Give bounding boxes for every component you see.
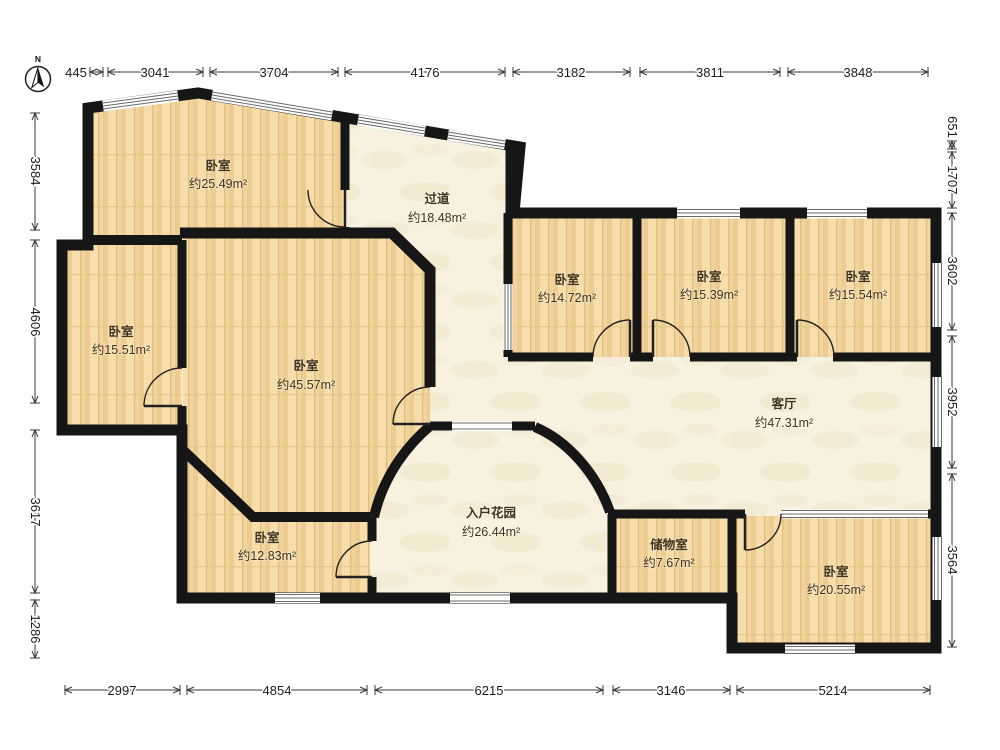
window-hall-partition: [505, 284, 511, 350]
room-name: 卧室: [696, 269, 722, 284]
window-bedroom-2055-bottom: [785, 647, 855, 654]
dim-right-3: 3952: [945, 388, 960, 417]
dim-top-6: 3848: [844, 65, 873, 80]
room-name: 储物室: [649, 537, 688, 552]
dim-left-3: 1286: [28, 615, 43, 644]
dim-top-2: 3704: [260, 65, 289, 80]
window-bedroom-1554-right: [935, 263, 942, 327]
room-name: 卧室: [823, 564, 849, 579]
room-area: 约20.55m²: [807, 582, 865, 597]
room-area: 约15.54m²: [829, 287, 887, 302]
dim-bottom-4: 5214: [819, 683, 848, 698]
dim-bottom-3: 3146: [657, 683, 686, 698]
room-area: 约18.48m²: [408, 210, 466, 225]
room-area: 约12.83m²: [238, 548, 296, 563]
dim-left-1: 4606: [28, 308, 43, 337]
room-name: 卧室: [293, 358, 319, 373]
room-name: 过道: [424, 191, 450, 206]
dim-top-1: 3041: [141, 65, 170, 80]
room-area: 约15.51m²: [92, 342, 150, 357]
dim-right-0: 651: [945, 116, 960, 138]
room-bedroom-2055-floor: [734, 516, 936, 648]
dim-top-0: 445: [65, 65, 87, 80]
dim-bottom-2: 6215: [475, 683, 504, 698]
room-area: 约25.49m²: [189, 176, 247, 191]
dim-top-3: 4176: [411, 65, 440, 80]
room-area: 约45.57m²: [277, 377, 335, 392]
room-bedroom-1539-floor: [639, 215, 788, 357]
room-area: 约14.72m²: [538, 290, 596, 305]
room-name: 卧室: [108, 324, 134, 339]
window-living-right: [935, 377, 942, 447]
room-name: 卧室: [254, 530, 280, 545]
window-bedroom-1539: [677, 210, 740, 217]
opening-garden-bottom: [450, 595, 510, 601]
window-bedroom-1554-top: [807, 210, 867, 217]
room-name: 客厅: [770, 396, 797, 411]
dim-right-4: 3564: [945, 546, 960, 575]
dim-right-1: 1707: [945, 166, 960, 195]
compass-north-label: N: [35, 54, 41, 64]
room-bedroom-1554-floor: [792, 215, 936, 357]
room-area: 约26.44m²: [462, 524, 520, 539]
dim-left-2: 3617: [28, 498, 43, 527]
floor-plan-page: 卧室 约25.49m² 过道 约18.48m² 卧室 约14.72m² 卧室 约…: [0, 0, 1000, 750]
floor-plan-drawing: 卧室 约25.49m² 过道 约18.48m² 卧室 约14.72m² 卧室 约…: [0, 0, 1000, 750]
room-name: 卧室: [554, 272, 580, 287]
dim-top-5: 3811: [696, 65, 724, 80]
dim-bottom-0: 2997: [108, 683, 137, 698]
opening-garden-top: [452, 423, 512, 429]
room-area: 约7.67m²: [643, 555, 694, 570]
compass: N: [26, 54, 51, 92]
dim-left-0: 3584: [28, 157, 43, 186]
room-area: 约15.39m²: [680, 287, 738, 302]
window-bedroom-2055-partition: [781, 511, 928, 518]
room-area: 约47.31m²: [755, 415, 813, 430]
room-name: 卧室: [845, 269, 871, 284]
dim-bottom-1: 4854: [263, 683, 292, 698]
window-bedroom-2055-right: [935, 537, 942, 600]
dim-top-4: 3182: [557, 65, 586, 80]
dim-right-2: 3602: [945, 257, 960, 286]
window-bedroom-1283-bottom: [275, 595, 320, 602]
room-name: 卧室: [205, 158, 231, 173]
room-name: 入户花园: [466, 505, 516, 520]
